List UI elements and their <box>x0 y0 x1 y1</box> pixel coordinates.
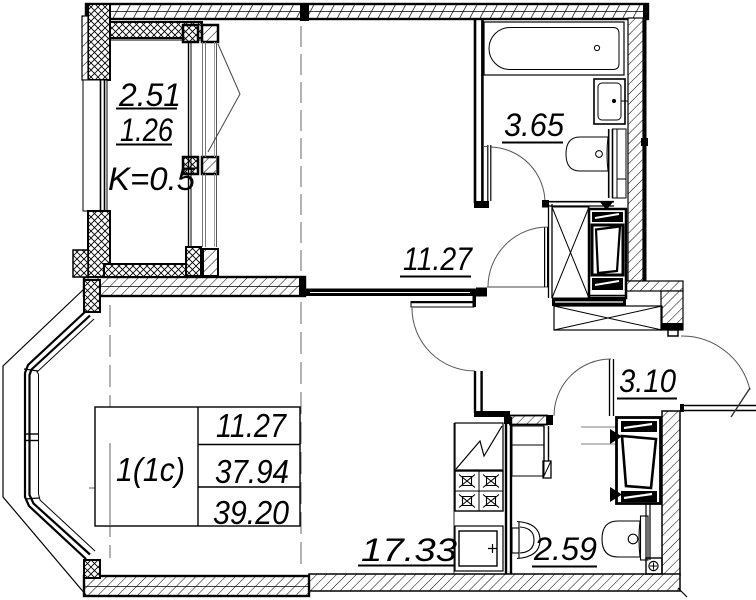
svg-text:39.20: 39.20 <box>213 494 290 531</box>
svg-text:3.65: 3.65 <box>504 107 564 143</box>
svg-text:3.10: 3.10 <box>619 363 676 399</box>
svg-text:17.33: 17.33 <box>361 532 457 568</box>
svg-text:2.59: 2.59 <box>533 531 597 567</box>
svg-text:37.94: 37.94 <box>215 453 289 490</box>
svg-text:11.27: 11.27 <box>216 407 287 444</box>
svg-text:1.26: 1.26 <box>120 112 173 148</box>
svg-text:K=0.5: K=0.5 <box>108 161 195 197</box>
svg-text:11.27: 11.27 <box>403 241 473 277</box>
svg-text:1(1c): 1(1c) <box>116 451 185 488</box>
